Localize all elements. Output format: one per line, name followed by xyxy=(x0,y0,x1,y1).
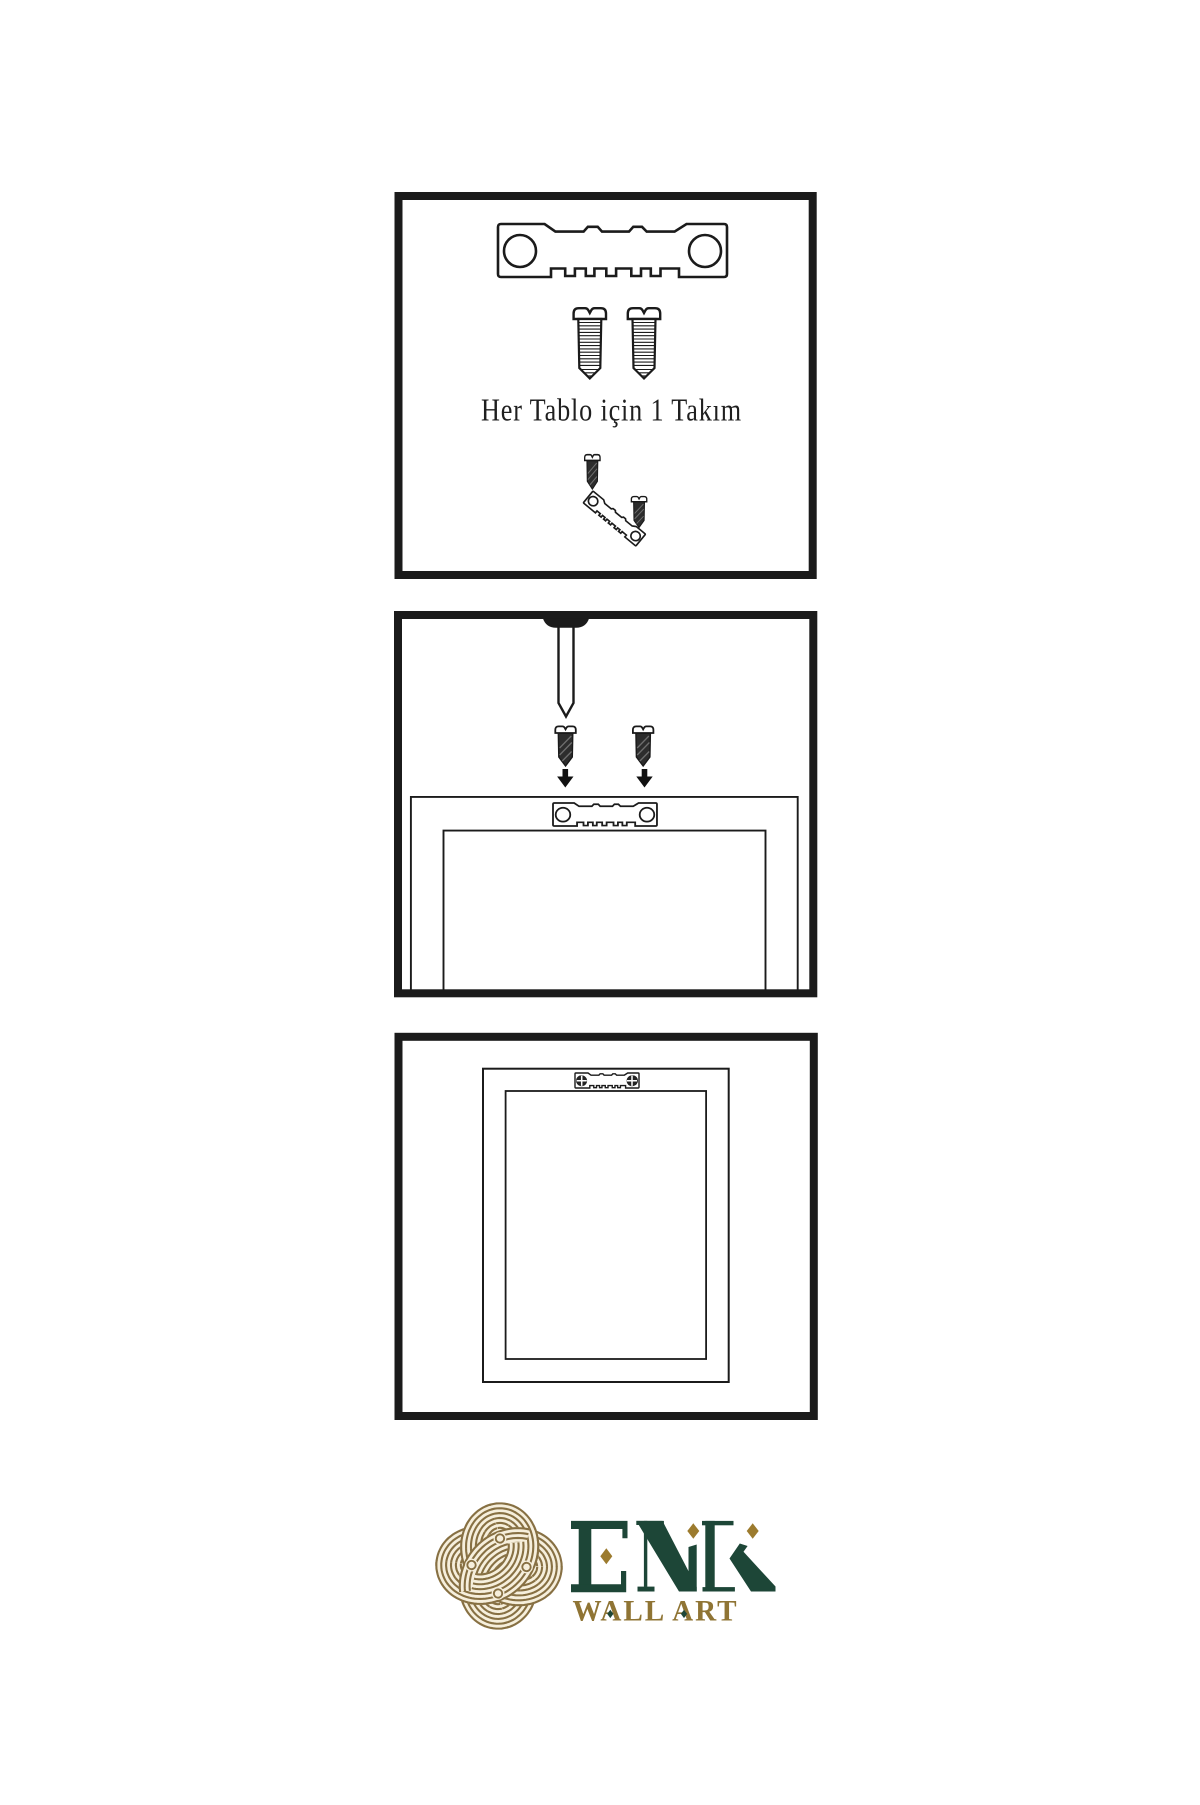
svg-text:WALL ART: WALL ART xyxy=(573,1595,739,1628)
svg-text:Her Tablo için 1 Takım: Her Tablo için 1 Takım xyxy=(481,393,742,428)
